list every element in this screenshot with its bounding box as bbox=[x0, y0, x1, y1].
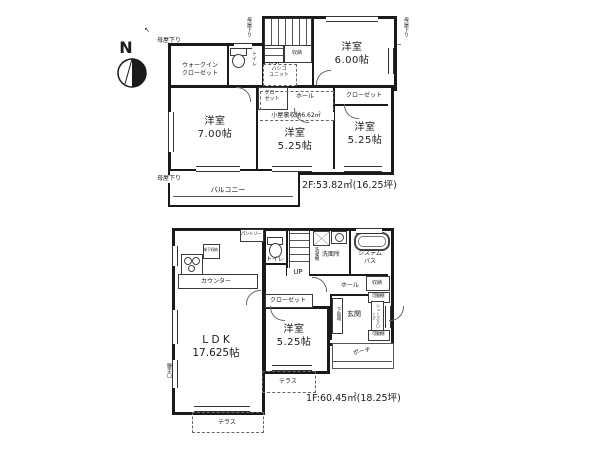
2f-toilet-bowl-icon bbox=[232, 54, 245, 68]
2f-window bbox=[196, 166, 240, 172]
1f-hall-label: ホール bbox=[336, 282, 364, 290]
eaves-note-top-mid: 母屋下り bbox=[242, 12, 251, 42]
2f-window bbox=[234, 43, 252, 49]
1f-bathtub-inner bbox=[358, 236, 386, 247]
1f-shoe-cabinet-label: 下駄箱 bbox=[333, 300, 340, 328]
2f-ladder-unit-label: ハシゴ ユニット bbox=[263, 66, 295, 79]
2f-window bbox=[168, 112, 174, 152]
2f-walk-in-closet-label: ウォークイン クローゼット bbox=[174, 62, 226, 77]
1f-closet-label: クローゼット bbox=[265, 297, 311, 305]
2f-room-c-label: 洋室 5.25帖 bbox=[266, 128, 324, 153]
1f-pantry-label: パントリー bbox=[240, 232, 262, 238]
1f-movable-shelf-top-label: 可動棚 bbox=[368, 294, 388, 300]
floor-plan-page: N ↖ 母屋下り 母屋下り ↓ 母屋下り 母屋下り D.N bbox=[0, 0, 600, 450]
1f-ldk-label: L D K 17.625帖 bbox=[186, 334, 246, 360]
2f-wall-wic-toilet bbox=[227, 45, 229, 85]
2f-room-ne-label: 洋室 6.00帖 bbox=[320, 42, 384, 67]
1f-bathtub-icon bbox=[354, 232, 390, 251]
1f-window bbox=[272, 365, 312, 371]
2f-wall-stairs-room bbox=[312, 18, 314, 85]
1f-burner-icon bbox=[192, 257, 200, 265]
2f-toilet-label: トイレ bbox=[248, 47, 256, 69]
1f-burner-icon bbox=[184, 257, 192, 265]
1f-entrance-door-arc bbox=[389, 306, 404, 321]
2f-closet-right-label: クローゼット bbox=[340, 92, 388, 100]
1f-washroom-label: 洗面所 bbox=[312, 251, 350, 259]
2f-storage-label: 収納 bbox=[284, 50, 310, 56]
2f-wall-closet-band bbox=[335, 104, 388, 106]
2f-window bbox=[326, 16, 378, 22]
compass-north-label: N bbox=[116, 38, 136, 58]
1f-counter-label: カウンター bbox=[190, 278, 242, 286]
1f-system-bath-label: システム バス bbox=[352, 250, 388, 265]
2f-stairs bbox=[264, 18, 312, 47]
1f-terrace-bottom-label: テラス bbox=[208, 419, 246, 427]
1f-shoe-cloak-label: シューズクローク bbox=[373, 302, 380, 329]
1f-storage-label: 収納 bbox=[366, 280, 388, 286]
2f-window bbox=[388, 48, 394, 74]
2f-balcony-label: バルコニー bbox=[198, 186, 258, 195]
1f-window bbox=[172, 310, 178, 344]
1f-terrace-mid-label: テラス bbox=[270, 378, 306, 386]
1f-stairs-up-label: UP bbox=[287, 268, 309, 277]
1f-entrance-label: 玄関 bbox=[341, 310, 367, 319]
compass-icon bbox=[115, 56, 149, 90]
2f-stairs-run bbox=[264, 45, 284, 63]
2f-room-e-label: 洋室 5.25帖 bbox=[336, 122, 394, 147]
2f-window bbox=[344, 166, 382, 172]
1f-washer-pan-icon bbox=[313, 231, 330, 246]
1f-sink-bowl-icon bbox=[335, 233, 344, 242]
1f-window bbox=[172, 360, 178, 388]
1f-toilet-label: トイレ bbox=[263, 256, 287, 264]
1f-porch-step-line bbox=[332, 361, 392, 362]
1f-burner-icon bbox=[188, 265, 195, 272]
1f-window bbox=[172, 246, 178, 266]
1f-window bbox=[194, 406, 250, 412]
1f-back-door-label: 勝手口 bbox=[163, 356, 171, 384]
1f-underfloor-storage-label: 床下収納 bbox=[203, 247, 218, 252]
2f-area-caption: 2F:53.82㎡(16.25坪) bbox=[302, 180, 418, 192]
arrow-nw-icon: ↖ bbox=[142, 26, 152, 35]
2f-window bbox=[272, 166, 312, 172]
1f-movable-shelf-bottom-label: 可動棚 bbox=[368, 332, 388, 338]
2f-room-w-label: 洋室 7.00帖 bbox=[186, 116, 244, 141]
1f-bedroom-label: 洋室 5.25帖 bbox=[268, 324, 320, 349]
1f-window bbox=[356, 228, 382, 234]
2f-balcony-rail-line bbox=[173, 196, 293, 197]
1f-area-caption: 1F:60.45㎡(18.25坪) bbox=[306, 393, 422, 405]
eaves-note-left: 母屋下り bbox=[152, 175, 186, 183]
